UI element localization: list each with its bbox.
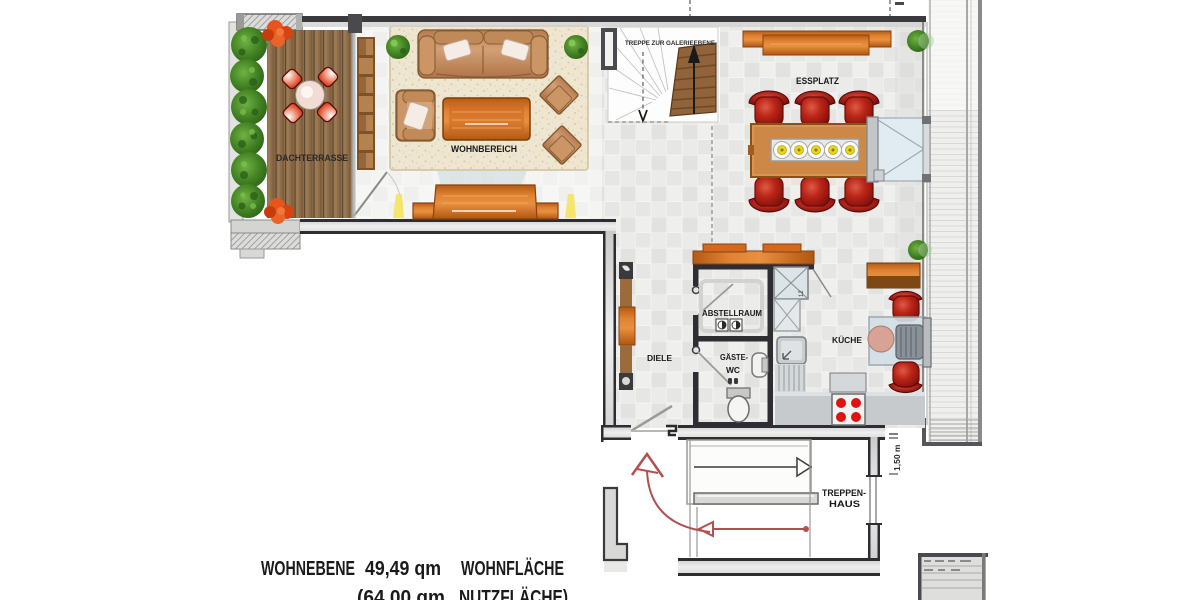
svg-text:WOHNEBENE: WOHNEBENE bbox=[261, 558, 355, 580]
svg-text:WOHNBEREICH: WOHNBEREICH bbox=[451, 144, 517, 155]
svg-text:12: 12 bbox=[799, 290, 805, 297]
svg-text:ESSPLATZ: ESSPLATZ bbox=[796, 76, 839, 87]
svg-text:TREPPE ZUR GALERIEEBENE: TREPPE ZUR GALERIEEBENE bbox=[625, 40, 715, 47]
svg-text:DACHTERRASSE: DACHTERRASSE bbox=[276, 153, 348, 163]
svg-text:TREPPEN-: TREPPEN- bbox=[822, 488, 866, 498]
svg-text:DIELE: DIELE bbox=[647, 353, 672, 363]
svg-text:NUTZFLÄCHE): NUTZFLÄCHE) bbox=[459, 586, 568, 600]
svg-text:WC: WC bbox=[726, 366, 740, 375]
svg-text:WOHNFLÄCHE: WOHNFLÄCHE bbox=[461, 557, 564, 580]
svg-text:HAUS: HAUS bbox=[829, 499, 860, 509]
svg-text:1,50 m: 1,50 m bbox=[892, 444, 902, 471]
svg-text:KÜCHE: KÜCHE bbox=[832, 335, 862, 345]
svg-text:49,49 qm: 49,49 qm bbox=[365, 558, 441, 580]
svg-text:GÄSTE-: GÄSTE- bbox=[720, 353, 748, 362]
svg-text:(64,00 qm: (64,00 qm bbox=[357, 587, 445, 600]
svg-text:ABSTELLRAUM: ABSTELLRAUM bbox=[702, 309, 762, 318]
